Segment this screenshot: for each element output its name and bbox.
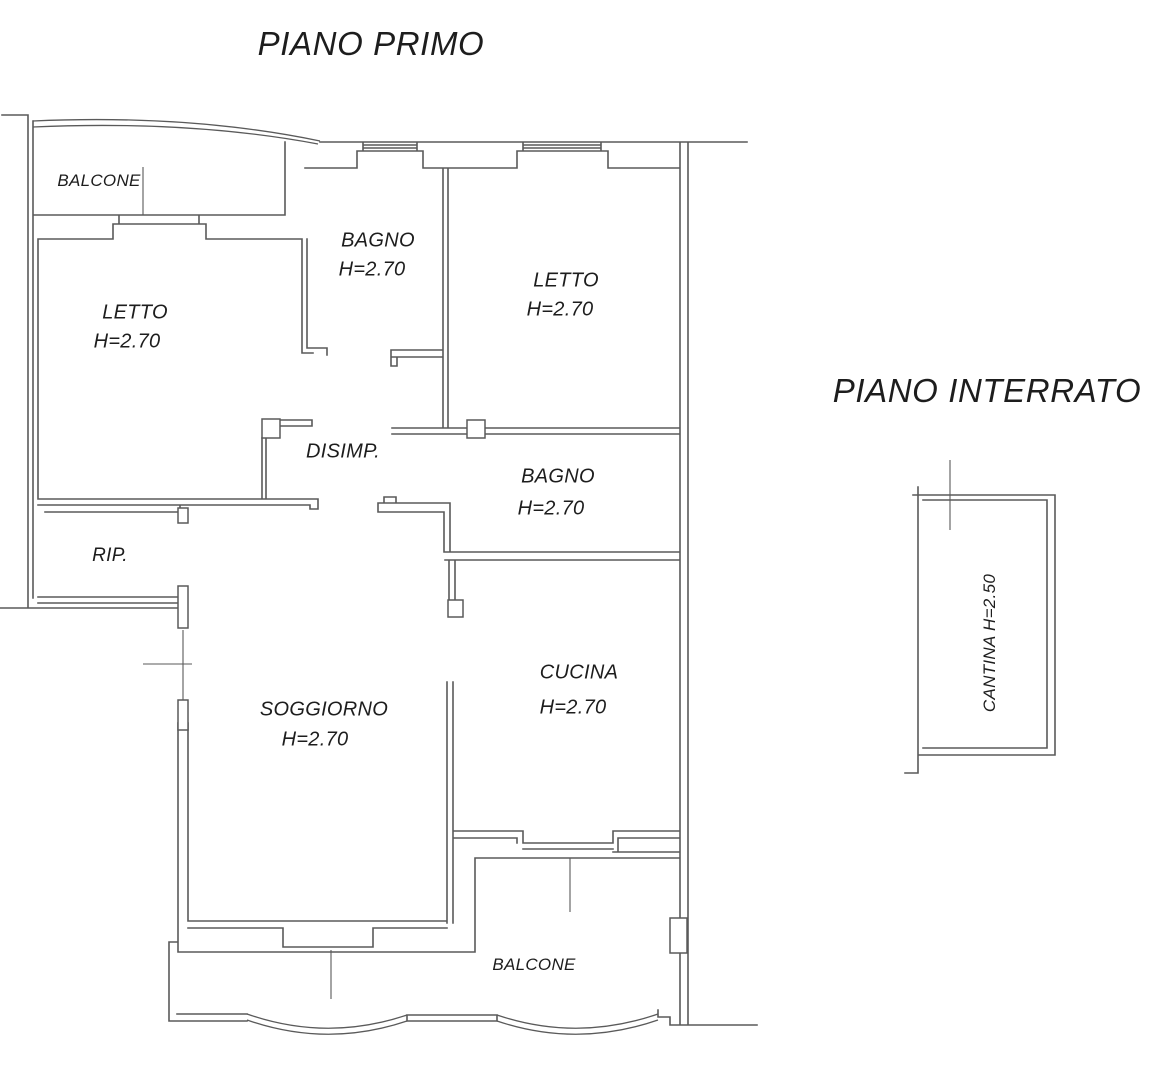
room-label-soggiorno: SOGGIORNO xyxy=(260,699,388,722)
walls xyxy=(0,115,1055,1025)
room-height-soggiorno: H=2.70 xyxy=(282,729,349,752)
balcony-curved-edges xyxy=(33,120,658,1035)
room-label-balcone-top: BALCONE xyxy=(57,171,140,191)
piano-primo-title: PIANO PRIMO xyxy=(258,25,485,63)
room-label-balcone-bottom: BALCONE xyxy=(492,955,575,975)
room-label-letto-left: LETTO xyxy=(102,302,168,325)
piano-interrato-title: PIANO INTERRATO xyxy=(833,372,1141,410)
room-label-bagno-top: BAGNO xyxy=(341,230,415,253)
room-height-cucina: H=2.70 xyxy=(540,697,607,720)
room-label-disimpegno: DISIMP. xyxy=(306,441,380,464)
room-height-bagno-mid: H=2.70 xyxy=(518,498,585,521)
room-label-cantina: CANTINA H=2.50 xyxy=(980,574,1000,712)
floor-plan-drawing xyxy=(0,0,1168,1074)
room-height-letto-left: H=2.70 xyxy=(94,331,161,354)
room-label-ripostiglio: RIP. xyxy=(92,545,128,567)
room-label-letto-right: LETTO xyxy=(533,270,599,293)
room-height-bagno-top: H=2.70 xyxy=(339,259,406,282)
floor-plan-page: PIANO PRIMO BALCONE LETTO H=2.70 BAGNO H… xyxy=(0,0,1168,1074)
room-label-cucina: CUCINA xyxy=(540,662,618,685)
room-height-letto-right: H=2.70 xyxy=(527,299,594,322)
room-label-bagno-mid: BAGNO xyxy=(521,466,595,489)
